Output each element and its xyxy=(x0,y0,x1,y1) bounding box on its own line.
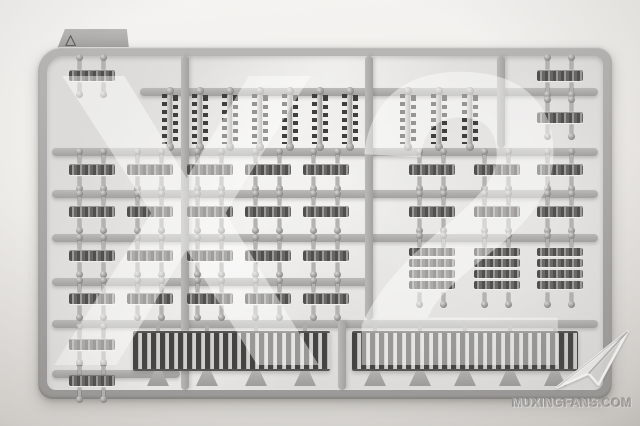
sprue-gate xyxy=(546,196,549,205)
sprue-gate xyxy=(570,238,573,247)
sprue-gate xyxy=(160,196,163,205)
sprue-gate xyxy=(156,322,160,331)
part-body xyxy=(537,248,583,256)
track-link-part xyxy=(187,279,233,319)
sprue-gate xyxy=(196,306,199,315)
sprue-gate xyxy=(102,60,105,69)
sprue-gate xyxy=(160,219,163,228)
sprue-gate xyxy=(418,177,421,186)
sprue-gate xyxy=(546,238,549,247)
runner-bar xyxy=(497,56,505,148)
part-detail xyxy=(411,94,416,144)
part-body xyxy=(318,92,322,146)
sprue-gate xyxy=(102,283,105,292)
sprue-gate xyxy=(546,154,549,163)
sprue-gate xyxy=(102,219,105,228)
sprue-gate xyxy=(336,177,339,186)
part-detail xyxy=(263,94,268,144)
sprue-gate xyxy=(254,283,257,292)
sprue-gate xyxy=(278,154,281,163)
track-link-part xyxy=(69,236,115,276)
track-link-part xyxy=(474,192,520,232)
sprue-gate xyxy=(102,329,105,338)
sprue-gate xyxy=(418,154,421,163)
sprue-gate xyxy=(570,177,573,186)
sprue-gate xyxy=(364,371,386,386)
sprue-gate xyxy=(102,177,105,186)
track-stack-part xyxy=(537,248,583,294)
parts-layer xyxy=(0,0,640,426)
suspension-arm-part xyxy=(221,92,239,146)
sprue-gate xyxy=(570,60,573,69)
sprue-gate xyxy=(205,322,209,331)
sprue-gate xyxy=(466,143,474,151)
sprue-gate xyxy=(78,240,81,249)
sprue-gate xyxy=(442,293,445,302)
runner-bar xyxy=(52,320,598,328)
sprue-gate xyxy=(570,293,573,302)
suspension-arm-part xyxy=(399,92,417,146)
sprue-gate xyxy=(102,263,105,272)
part-body xyxy=(537,113,583,123)
suspension-arm-part xyxy=(161,92,179,146)
track-link-part xyxy=(303,150,349,190)
sprue-gate xyxy=(78,365,81,374)
track-link-part xyxy=(187,192,233,232)
track-link-part xyxy=(69,325,115,365)
sprue-gate xyxy=(196,371,218,386)
sprue-gate xyxy=(196,154,199,163)
sprue-gate xyxy=(254,263,257,272)
part-body xyxy=(187,251,233,261)
sprue-gate xyxy=(196,219,199,228)
sprue-gate xyxy=(136,263,139,272)
sprue-gate xyxy=(507,177,510,186)
sprue-gate xyxy=(570,83,573,92)
track-stack-part xyxy=(474,248,520,294)
track-stack-part xyxy=(409,248,455,294)
part-detail xyxy=(400,94,405,144)
sprue-gate xyxy=(312,219,315,228)
part-body xyxy=(409,270,455,278)
sprue-gate xyxy=(102,240,105,249)
sprue-gate xyxy=(435,87,443,95)
photo-canvas: △ X2 MUXINGFANS.COM xyxy=(0,0,640,426)
part-body xyxy=(537,165,583,175)
part-body xyxy=(537,281,583,289)
track-link-part xyxy=(127,150,173,190)
part-detail xyxy=(233,94,238,144)
part-body xyxy=(303,251,349,261)
sprue-gate xyxy=(254,177,257,186)
part-detail xyxy=(192,94,197,144)
track-link-part xyxy=(245,279,291,319)
sprue-gate xyxy=(312,283,315,292)
suspension-arm-part xyxy=(281,92,299,146)
sprue-gate xyxy=(220,306,223,315)
sprue-gate xyxy=(78,83,81,92)
sprue-gate xyxy=(278,219,281,228)
part-body xyxy=(69,165,115,175)
part-detail xyxy=(323,94,328,144)
track-link-part xyxy=(537,98,583,138)
sprue-gate xyxy=(278,240,281,249)
sprue-gate xyxy=(102,154,105,163)
sprue-gate xyxy=(570,154,573,163)
sprue-gate xyxy=(553,322,557,331)
sprue-gate xyxy=(220,177,223,186)
part-body xyxy=(409,259,455,267)
sprue-gate xyxy=(254,306,257,315)
part-body xyxy=(69,376,115,386)
part-body xyxy=(187,165,233,175)
sprue-gate xyxy=(499,371,521,386)
sprue-gate xyxy=(136,154,139,163)
part-body xyxy=(69,251,115,261)
track-link-part xyxy=(127,279,173,319)
part-body xyxy=(409,248,455,256)
sprue-gate xyxy=(570,102,573,111)
sprue-gate xyxy=(442,177,445,186)
suspension-arm-part xyxy=(311,92,329,146)
sprue-gate xyxy=(483,293,486,302)
part-body xyxy=(69,207,115,217)
part-body xyxy=(406,92,410,146)
sprue-gate xyxy=(196,240,199,249)
sprue-gate xyxy=(278,196,281,205)
track-link-part xyxy=(409,150,455,190)
sprue-gate xyxy=(136,240,139,249)
sprue-gate xyxy=(286,87,294,95)
part-body xyxy=(409,165,455,175)
track-link-part xyxy=(187,150,233,190)
sprue-gate xyxy=(466,87,474,95)
track-link-part xyxy=(127,236,173,276)
track-link-part xyxy=(69,279,115,319)
part-body xyxy=(303,294,349,304)
part-body xyxy=(69,71,115,81)
sprue-gate xyxy=(463,322,467,331)
track-link-part xyxy=(69,361,115,401)
runner-bar xyxy=(338,320,346,390)
sprue-gate xyxy=(483,238,486,247)
sprue-gate xyxy=(483,196,486,205)
sprue-gate xyxy=(316,87,324,95)
sprue-gate xyxy=(570,125,573,134)
sprue-gate xyxy=(196,177,199,186)
part-body xyxy=(409,207,455,217)
part-detail xyxy=(312,94,317,144)
sprue-gate xyxy=(136,177,139,186)
track-link-strip xyxy=(133,331,330,371)
sprue-gate xyxy=(78,219,81,228)
sprue-gate xyxy=(508,322,512,331)
sprue-gate xyxy=(303,322,307,331)
part-detail xyxy=(462,94,467,144)
sprue-gate xyxy=(336,219,339,228)
sprue-gate xyxy=(418,293,421,302)
sprue-gate xyxy=(196,196,199,205)
sprue-gate xyxy=(102,388,105,397)
track-link-part xyxy=(127,192,173,232)
sprue-gate xyxy=(78,60,81,69)
sprue-gate xyxy=(483,177,486,186)
sprue-gate xyxy=(483,154,486,163)
sprue-gate xyxy=(336,154,339,163)
part-body xyxy=(288,92,292,146)
track-link-part xyxy=(537,56,583,96)
sprue-gate xyxy=(136,283,139,292)
sprue-gate xyxy=(220,154,223,163)
sprue-gate xyxy=(160,154,163,163)
sprue-gate xyxy=(418,219,421,228)
part-detail xyxy=(203,94,208,144)
part-body xyxy=(198,92,202,146)
sprue-gate xyxy=(546,219,549,228)
part-body xyxy=(245,207,291,217)
sprue-gate xyxy=(312,306,315,315)
part-body xyxy=(474,165,520,175)
track-link-part xyxy=(69,56,115,96)
sprue-gate xyxy=(373,322,377,331)
sprue-gate xyxy=(546,60,549,69)
track-link-part xyxy=(245,192,291,232)
part-body xyxy=(437,92,441,146)
runner-bar xyxy=(365,56,373,320)
part-body xyxy=(168,92,172,146)
sprue-gate xyxy=(442,196,445,205)
part-detail xyxy=(431,94,436,144)
sprue-gate xyxy=(346,87,354,95)
sprue-gate xyxy=(78,263,81,272)
part-body xyxy=(127,294,173,304)
track-link-part xyxy=(474,150,520,190)
sprue-gate xyxy=(312,240,315,249)
part-body xyxy=(537,71,583,81)
part-body xyxy=(127,251,173,261)
sprue-gate xyxy=(102,83,105,92)
part-body xyxy=(187,294,233,304)
suspension-arm-part xyxy=(461,92,479,146)
sprue-gate xyxy=(312,154,315,163)
part-detail xyxy=(342,94,347,144)
sprue-gate xyxy=(196,283,199,292)
part-body xyxy=(303,165,349,175)
sprue-gate xyxy=(483,219,486,228)
sprue-gate xyxy=(78,283,81,292)
sprue-gate xyxy=(78,154,81,163)
sprue-gate xyxy=(546,177,549,186)
track-link-part xyxy=(303,236,349,276)
sprue-gate xyxy=(507,293,510,302)
part-body xyxy=(537,259,583,267)
track-link-part xyxy=(303,279,349,319)
sprue-gate xyxy=(336,196,339,205)
sprue-gate xyxy=(570,219,573,228)
part-body xyxy=(468,92,472,146)
part-body xyxy=(69,294,115,304)
track-link-part xyxy=(303,192,349,232)
part-detail xyxy=(222,94,227,144)
part-body xyxy=(258,92,262,146)
sprue-gate xyxy=(245,371,267,386)
sprue-gate xyxy=(254,219,257,228)
sprue-gate xyxy=(507,238,510,247)
sprue-gate xyxy=(312,196,315,205)
sprue-gate xyxy=(442,238,445,247)
part-body xyxy=(187,207,233,217)
track-link-part xyxy=(537,150,583,190)
part-body xyxy=(474,207,520,217)
sprue-gate xyxy=(312,263,315,272)
part-body xyxy=(69,340,115,350)
track-link-strip xyxy=(352,331,578,371)
sprue-gate xyxy=(160,263,163,272)
track-link-part xyxy=(69,192,115,232)
sprue-gate xyxy=(409,371,431,386)
part-body xyxy=(474,281,520,289)
sprue-gate xyxy=(546,83,549,92)
part-detail xyxy=(353,94,358,144)
track-link-part xyxy=(69,150,115,190)
part-detail xyxy=(473,94,478,144)
suspension-arm-part xyxy=(341,92,359,146)
sprue-gate xyxy=(160,283,163,292)
sprue-gate xyxy=(78,329,81,338)
sprue-gate xyxy=(254,240,257,249)
sprue-gate xyxy=(220,263,223,272)
sprue-gate xyxy=(336,283,339,292)
sprue-gate xyxy=(570,196,573,205)
track-link-part xyxy=(409,192,455,232)
sprue-gate xyxy=(278,177,281,186)
part-body xyxy=(127,165,173,175)
sprue-gate xyxy=(220,240,223,249)
part-body xyxy=(474,259,520,267)
sprue-gate xyxy=(336,263,339,272)
track-link-part xyxy=(537,192,583,232)
sprue-gate xyxy=(136,219,139,228)
sprue-gate xyxy=(220,196,223,205)
part-body xyxy=(245,251,291,261)
sprue-gate xyxy=(336,240,339,249)
part-detail xyxy=(293,94,298,144)
sprue-gate xyxy=(336,306,339,315)
part-body xyxy=(474,270,520,278)
sprue-gate xyxy=(546,293,549,302)
part-body xyxy=(537,270,583,278)
part-body xyxy=(228,92,232,146)
part-detail xyxy=(252,94,257,144)
sprue-gate xyxy=(507,219,510,228)
part-body xyxy=(474,248,520,256)
sprue-gate xyxy=(220,283,223,292)
sprue-gate xyxy=(220,219,223,228)
sprue-gate xyxy=(196,263,199,272)
suspension-arm-part xyxy=(191,92,209,146)
sprue-gate xyxy=(160,240,163,249)
track-link-part xyxy=(245,150,291,190)
part-body xyxy=(303,207,349,217)
part-body xyxy=(348,92,352,146)
part-body xyxy=(127,207,173,217)
sprue-gate xyxy=(166,87,174,95)
part-detail xyxy=(282,94,287,144)
sprue-gate xyxy=(546,102,549,111)
sprue-gate xyxy=(78,388,81,397)
suspension-arm-part xyxy=(251,92,269,146)
sprue-gate xyxy=(136,196,139,205)
sprue-gate xyxy=(507,196,510,205)
sprue-gate xyxy=(442,219,445,228)
part-detail xyxy=(162,94,167,144)
sprue-gate xyxy=(418,238,421,247)
sprue-gate xyxy=(254,196,257,205)
part-body xyxy=(245,165,291,175)
sprue-gate xyxy=(256,87,264,95)
sprue-gate xyxy=(78,306,81,315)
sprue-gate xyxy=(442,154,445,163)
part-body xyxy=(409,281,455,289)
part-detail xyxy=(442,94,447,144)
sprue-gate xyxy=(226,87,234,95)
sprue-gate xyxy=(102,365,105,374)
sprue-gate xyxy=(102,306,105,315)
sprue-gate xyxy=(254,154,257,163)
track-link-part xyxy=(187,236,233,276)
sprue-gate xyxy=(78,196,81,205)
sprue-gate xyxy=(196,87,204,95)
sprue-gate xyxy=(418,196,421,205)
sprue-gate xyxy=(454,371,476,386)
sprue-gate xyxy=(418,322,422,331)
sprue-gate xyxy=(102,196,105,205)
sprue-gate xyxy=(254,322,258,331)
sprue-gate xyxy=(294,371,316,386)
sprue-gate xyxy=(544,371,566,386)
part-body xyxy=(245,294,291,304)
sprue-gate xyxy=(312,177,315,186)
sprue-gate xyxy=(160,177,163,186)
sprue-gate xyxy=(278,263,281,272)
part-detail xyxy=(173,94,178,144)
sprue-gate xyxy=(507,154,510,163)
sprue-gate xyxy=(278,283,281,292)
sprue-gate xyxy=(78,177,81,186)
sprue-gate xyxy=(160,306,163,315)
sprue-gate xyxy=(404,87,412,95)
sprue-gate xyxy=(546,125,549,134)
sprue-gate xyxy=(136,306,139,315)
suspension-arm-part xyxy=(430,92,448,146)
track-link-part xyxy=(245,236,291,276)
part-body xyxy=(537,207,583,217)
sprue-gate xyxy=(278,306,281,315)
